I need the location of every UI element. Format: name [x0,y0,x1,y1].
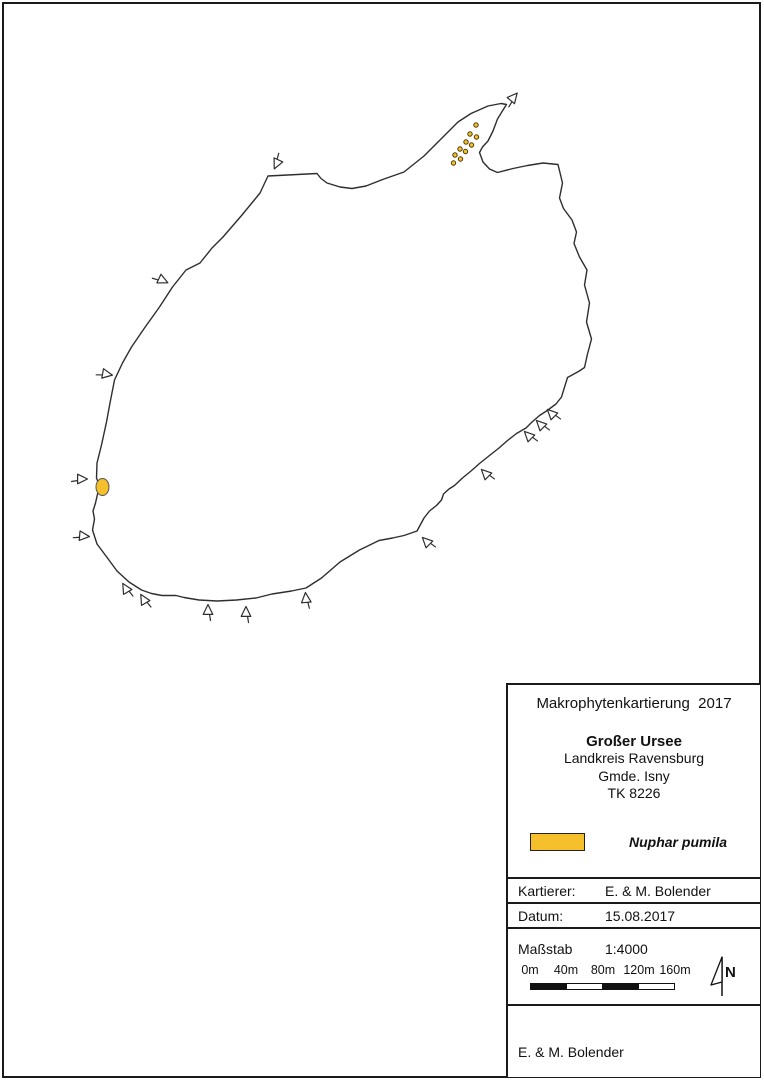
scale-bar-segment [638,983,675,990]
map-title: Makrophytenkartierung 2017 [508,685,760,712]
flow-arrow-icon [419,534,437,552]
legend-key-row: Nuphar pumila [508,833,760,851]
flow-arrow-icon [203,605,213,621]
species-dot [458,147,462,151]
legend-title-section: Makrophytenkartierung 2017 Großer Ursee … [508,685,760,879]
credit-name: E. & M. Bolender [518,1043,760,1062]
municipality-label: Gmde. Isny [508,768,760,786]
date-label: Datum: [518,908,605,924]
scale-bar-segment [602,983,639,990]
scale-bar-segment [566,983,603,990]
tick-0m: 0m [521,963,538,977]
species-dot [474,135,478,139]
cartographer-row: Kartierer: E. & M. Bolender [508,879,760,904]
species-patch-ellipse [96,479,109,496]
flow-arrow-icon [478,466,496,484]
map-sheet-label: TK 8226 [508,785,760,803]
species-name: Nuphar pumila [629,834,727,850]
date-value: 15.08.2017 [605,908,675,924]
scale-tick-labels: 0m 40m 80m 120m 160m [530,963,675,977]
legend-box: Makrophytenkartierung 2017 Großer Ursee … [506,683,760,1077]
species-dot [453,153,457,157]
species-dot [463,149,467,153]
species-dot [451,161,455,165]
tick-120m: 120m [623,963,654,977]
lake-name: Großer Ursee [508,733,760,750]
flow-arrow-icon [241,607,251,623]
species-dot [468,132,472,136]
lake-outline [93,104,592,602]
flow-arrow-icon [73,530,90,541]
tick-160m: 160m [659,963,690,977]
species-dot [458,157,462,161]
flow-arrows-layer [72,90,563,623]
cartographer-label: Kartierer: [518,883,605,899]
tick-40m: 40m [554,963,578,977]
flow-arrow-icon [151,272,170,287]
flow-arrow-icon [96,368,113,380]
tick-80m: 80m [591,963,615,977]
flow-arrow-icon [301,592,312,609]
species-dots-layer [451,123,478,165]
north-letter: N [725,964,736,981]
map-page: Makrophytenkartierung 2017 Großer Ursee … [0,0,764,1080]
scale-section: Maßstab 1:4000 0m 40m 80m 120m 160m N [508,929,760,1006]
scale-ratio: 1:4000 [605,941,648,957]
species-dot [474,123,478,127]
scale-bar [530,983,675,990]
cartographer-value: E. & M. Bolender [605,883,711,899]
flow-arrow-icon [72,474,88,484]
scale-bar-segment [530,983,567,990]
north-arrow-icon: N [706,955,746,999]
credits-section: E. & M. Bolender Landschaftsarchitekten … [508,1006,760,1079]
district-label: Landkreis Ravensburg [508,750,760,768]
date-row: Datum: 15.08.2017 [508,904,760,929]
species-color-swatch [530,833,585,851]
scale-label: Maßstab [518,941,572,957]
flow-arrow-icon [544,406,562,424]
flow-arrow-icon [270,152,285,171]
species-dot [464,140,468,144]
flow-arrow-icon [137,592,153,611]
flow-arrow-icon [521,428,539,446]
species-dot [469,143,473,147]
